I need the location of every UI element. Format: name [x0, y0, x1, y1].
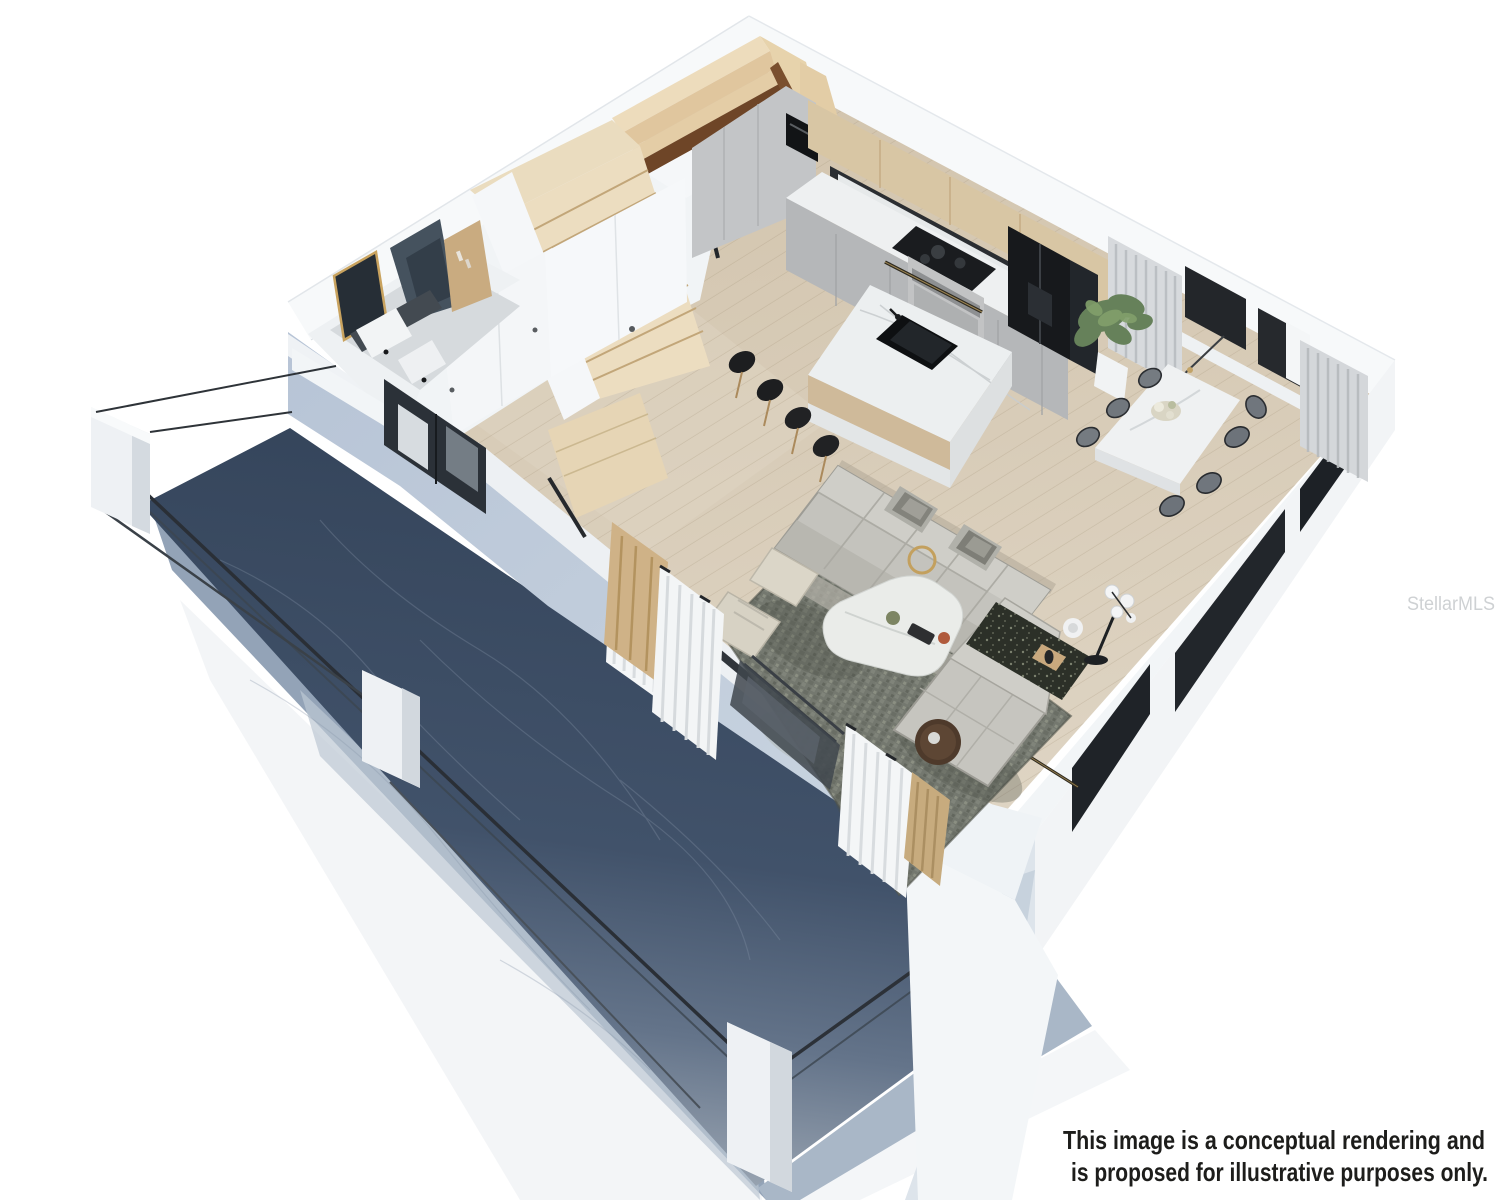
svg-text:This image is a conceptual ren: This image is a conceptual rendering and — [1063, 1125, 1485, 1155]
svg-text:is proposed for illustrative p: is proposed for illustrative purposes on… — [1071, 1157, 1488, 1187]
svg-text:StellarMLS: StellarMLS — [1407, 594, 1495, 615]
